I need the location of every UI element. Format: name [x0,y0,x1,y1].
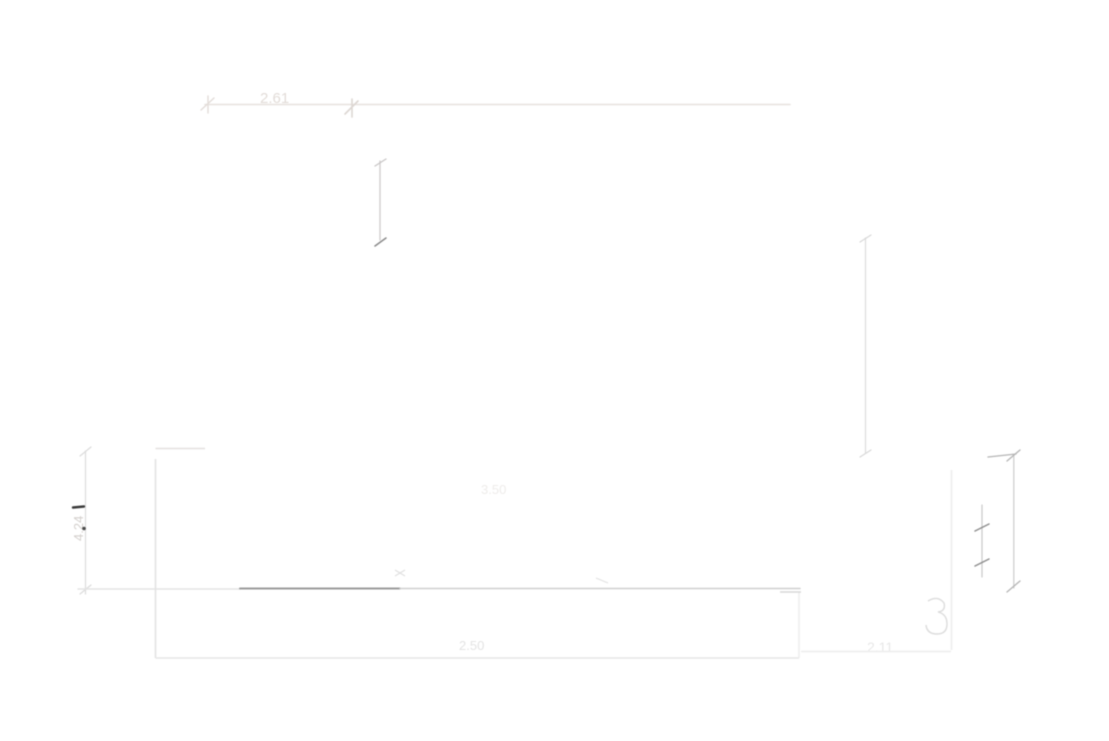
svg-text:2.50: 2.50 [459,638,484,653]
svg-text:3.50: 3.50 [481,482,506,497]
svg-text:2.11: 2.11 [867,639,893,655]
svg-text:2.61: 2.61 [260,90,289,107]
